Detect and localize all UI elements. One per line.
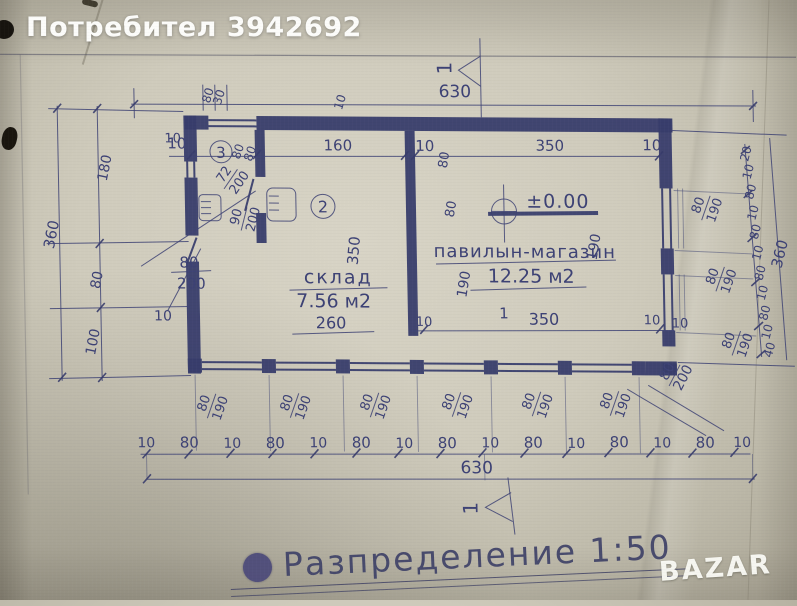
dim-rchain: 10 — [759, 323, 776, 341]
dim-bchain: 10 — [223, 436, 241, 452]
photo-of-floor-plan: { "header": { "user": "Потребител 394269… — [0, 0, 797, 600]
callout-2: 2 — [318, 197, 329, 216]
dim-rchain: 80 — [756, 304, 773, 322]
dim-row: 160 — [323, 136, 352, 154]
dim-bchain: 10 — [481, 435, 499, 451]
dim-rchain: 40 — [761, 341, 778, 359]
dim-right-ten: 10 — [672, 316, 689, 331]
shop-vert-low: 190 — [454, 270, 474, 299]
room-labels: 3 2 72 200 90 200 80 200 10 80 200 склад… — [151, 140, 697, 394]
storage-area: 7.56 м2 — [296, 290, 371, 312]
dim-rchain: 80 — [747, 223, 764, 241]
right-dimensions: 360 20 10 80 10 80 10 80 10 80 10 40 80 … — [668, 130, 795, 366]
dim-bchain: 80 — [696, 434, 715, 452]
door-label-72-200: 72 200 — [212, 159, 253, 199]
dim-bchain: 80 — [524, 434, 543, 452]
dim-rchain: 80 — [752, 264, 769, 282]
dim-rchain: 10 — [754, 284, 771, 302]
svg-text:80: 80 — [179, 253, 198, 271]
dim-rchain: 10 — [740, 162, 757, 180]
dim-bchain: 10 — [567, 436, 585, 452]
dim-left-ten: 10 — [164, 131, 181, 146]
viewer-username-overlay: Потребител 3942692 — [26, 12, 362, 43]
dim-bchain: 10 — [395, 436, 413, 452]
shop-number: 1 — [499, 304, 509, 322]
dim-bchain: 80 — [610, 433, 629, 451]
dim-total-top: 630 — [438, 82, 471, 102]
shop-width: 350 — [529, 310, 560, 329]
bottom-dimensions: 80 190 80 190 80 190 80 190 80 190 80 19… — [136, 374, 758, 536]
window-label: 80 190 — [687, 190, 726, 226]
dim-rchain: 10 — [749, 244, 766, 262]
dim-bchain: 10 — [733, 435, 751, 451]
dim-row: 10 — [415, 137, 434, 155]
dim-bchain: 80 — [266, 434, 285, 452]
svg-text:200: 200 — [177, 274, 206, 292]
storage-name: склад — [304, 266, 373, 288]
dim-bchain: 10 — [653, 435, 671, 451]
shop-gap-right: 10 — [644, 313, 661, 328]
dim-top-window-h: 30 — [210, 88, 228, 107]
partition-wall — [405, 131, 419, 336]
storage-width: 260 — [316, 313, 347, 332]
window-label: 80 190 — [596, 386, 635, 422]
level-mark: ±0.00 — [488, 184, 599, 243]
dim-bchain: 80 — [352, 434, 371, 452]
section-mark-bottom: 1 — [458, 477, 515, 534]
dim-left-ten2: 10 — [154, 308, 172, 324]
blueprint-drawing: 630 80 30 10 1 10 160 10 350 10 80 80 10 — [0, 0, 797, 602]
dim-right-total: 360 — [768, 238, 792, 270]
window-label: 80 190 — [718, 325, 757, 361]
floor-plan-svg: 630 80 30 10 1 10 160 10 350 10 80 80 10 — [0, 0, 797, 602]
storage-depth: 350 — [344, 235, 364, 265]
window-label: 80 190 — [193, 388, 232, 424]
dim-row: 350 — [535, 137, 564, 155]
shop-vert-mid: 80 — [443, 200, 460, 219]
dim-bchain: 10 — [309, 435, 327, 451]
dim-left: 100 — [83, 327, 104, 357]
dim-rchain: 20 — [737, 144, 754, 162]
window-label: 80 190 — [702, 261, 741, 297]
dim-rchain: 80 — [742, 182, 759, 200]
section-bottom-label: 1 — [458, 502, 482, 515]
dim-rchain: 10 — [744, 203, 761, 221]
window-label: 80 190 — [276, 388, 315, 424]
dim-bchain: 80 — [438, 434, 457, 452]
window-label: 80 190 — [356, 387, 395, 423]
callout-3: 3 — [216, 144, 226, 162]
dim-total-bottom: 630 — [460, 458, 493, 478]
dim-top-ten: 10 — [331, 93, 349, 112]
shop-vert-top: 80 — [436, 151, 453, 170]
level-value: ±0.00 — [526, 191, 590, 213]
sink-fixture — [267, 188, 297, 221]
dim-left: 80 — [88, 270, 107, 291]
door-label-80-200-right: 80 200 — [655, 354, 697, 394]
shop-gap-left: 10 — [416, 315, 433, 330]
dim-bchain: 10 — [137, 435, 155, 451]
window-label: 80 190 — [438, 387, 477, 423]
section-top-label: 1 — [432, 62, 456, 75]
window-label: 80 190 — [518, 386, 557, 422]
dim-row: 10 — [642, 136, 661, 154]
shop-area: 12.25 м2 — [488, 265, 575, 288]
dim-bchain: 80 — [180, 433, 199, 451]
